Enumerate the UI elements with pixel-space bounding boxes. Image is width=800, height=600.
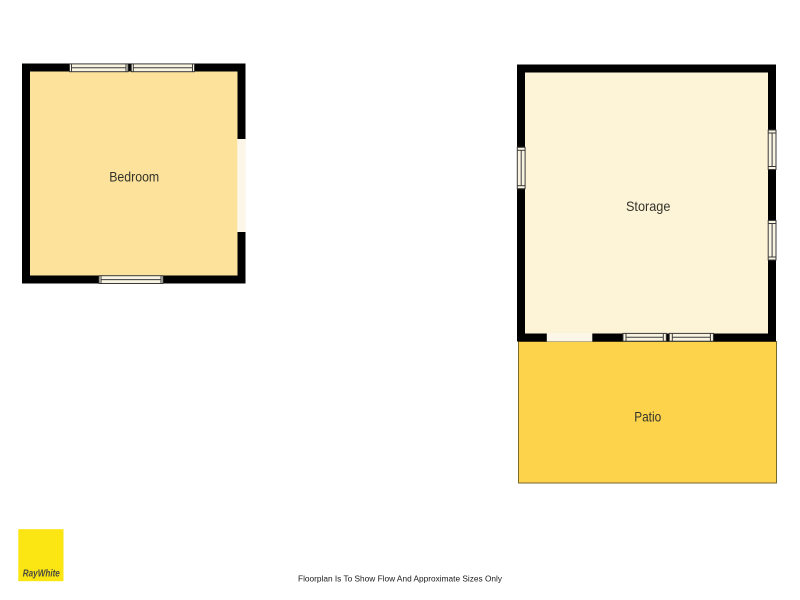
svg-text:Storage: Storage bbox=[626, 198, 671, 214]
svg-text:RayWhite: RayWhite bbox=[23, 568, 60, 580]
svg-text:Bedroom: Bedroom bbox=[109, 169, 159, 185]
svg-text:Floorplan Is To Show Flow And: Floorplan Is To Show Flow And Approximat… bbox=[298, 574, 503, 584]
svg-text:Patio: Patio bbox=[634, 409, 661, 425]
